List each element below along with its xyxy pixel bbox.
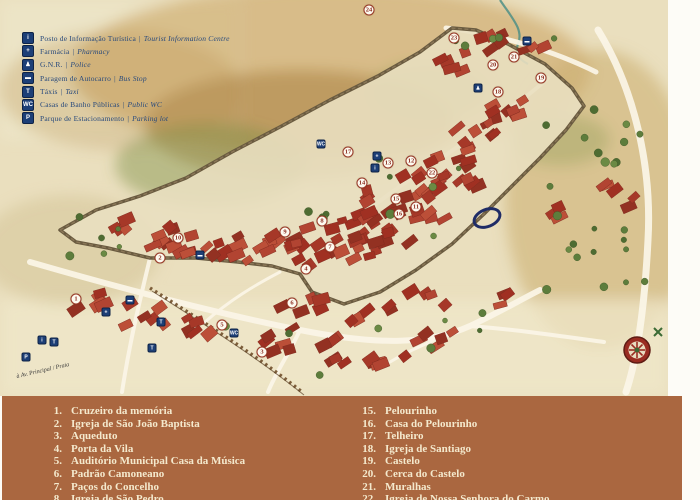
landmark-label: Auditório Municipal Casa da Música xyxy=(71,455,245,468)
landmark-number: 1. xyxy=(38,405,62,418)
bus-stop-icon: ▬ xyxy=(22,72,34,84)
map-marker-1: 1 xyxy=(71,294,82,305)
landmark-number: 17. xyxy=(352,430,376,443)
pharmacy-icon: + xyxy=(373,152,382,161)
map-marker-5: 5 xyxy=(217,320,228,331)
landmark-item: 16.Casa do Pelourinho xyxy=(352,418,672,431)
map-marker-20: 20 xyxy=(488,60,499,71)
tourist-info-icon: i xyxy=(22,32,34,44)
landmark-label: Igreja de São Pedro xyxy=(71,493,164,500)
map-marker-9: 9 xyxy=(280,227,291,238)
taxi-icon: T xyxy=(157,318,166,327)
landmark-number: 18. xyxy=(352,443,376,456)
landmark-item: 21.Muralhas xyxy=(352,481,672,494)
map-marker-4: 4 xyxy=(301,264,312,275)
landmark-number: 22. xyxy=(352,493,376,500)
legend-label: Táxis|Taxi xyxy=(40,87,79,96)
map-marker-18: 18 xyxy=(493,87,504,98)
landmark-label: Telheiro xyxy=(385,430,424,443)
landmark-label: Igreja de São João Baptista xyxy=(71,418,200,431)
landmark-item: 2.Igreja de São João Baptista xyxy=(38,418,328,431)
legend-item: ▬Paragem de Autocarro|Bus Stop xyxy=(22,73,292,83)
landmark-number: 21. xyxy=(352,481,376,494)
landmark-number: 7. xyxy=(38,481,62,494)
taxi-icon: T xyxy=(148,344,157,353)
legend-label: Farmácia|Pharmacy xyxy=(40,47,110,56)
public-wc-icon: WC xyxy=(22,99,34,111)
landmark-number: 2. xyxy=(38,418,62,431)
landmark-label: Castelo xyxy=(385,455,420,468)
landmark-number: 5. xyxy=(38,455,62,468)
map-marker-17: 17 xyxy=(343,147,354,158)
landmark-item: 5.Auditório Municipal Casa da Música xyxy=(38,455,328,468)
landmark-number: 3. xyxy=(38,430,62,443)
pharmacy-icon: + xyxy=(102,308,111,317)
landmark-item: 22.Igreja de Nossa Senhora do Carmo xyxy=(352,493,672,500)
landmark-label: Muralhas xyxy=(385,481,431,494)
landmark-label: Igreja de Nossa Senhora do Carmo xyxy=(385,493,550,500)
landmark-number: 19. xyxy=(352,455,376,468)
landmark-item: 4.Porta da Vila xyxy=(38,443,328,456)
tourist-info-icon: i xyxy=(371,164,380,173)
map-marker-7: 7 xyxy=(325,242,336,253)
map-marker-8: 8 xyxy=(317,216,328,227)
landmark-label: Pelourinho xyxy=(385,405,437,418)
landmark-item: 7.Paços do Concelho xyxy=(38,481,328,494)
landmark-label: Porta da Vila xyxy=(71,443,133,456)
map-marker-22: 22 xyxy=(427,168,438,179)
pharmacy-icon: + xyxy=(22,45,34,57)
bus-stop-icon: ▬ xyxy=(523,37,532,46)
legend-item: PParque de Estacionamento|Parking lot xyxy=(22,113,292,123)
map-marker-14: 14 xyxy=(357,178,368,189)
police-icon: ♟ xyxy=(474,84,483,93)
landmark-label: Cerca do Castelo xyxy=(385,468,465,481)
map-marker-24: 24 xyxy=(364,5,375,16)
landmark-column-right: 15.Pelourinho16.Casa do Pelourinho17.Tel… xyxy=(352,405,672,500)
landmark-item: 3.Aqueduto xyxy=(38,430,328,443)
map-marker-23: 23 xyxy=(449,33,460,44)
legend-item: WCCasas de Banho Públicas|Public WC xyxy=(22,100,292,110)
bus-stop-icon: ▬ xyxy=(196,251,205,260)
landmark-label: Casa do Pelourinho xyxy=(385,418,477,431)
landmark-item: 18.Igreja de Santiago xyxy=(352,443,672,456)
bus-stop-icon: ▬ xyxy=(126,296,135,305)
police-icon: ♟ xyxy=(22,59,34,71)
landmark-number: 20. xyxy=(352,468,376,481)
public-wc-icon: WC xyxy=(317,140,326,149)
map-marker-6: 6 xyxy=(287,298,298,309)
map-marker-19: 19 xyxy=(536,73,547,84)
landmark-column-left: 1.Cruzeiro da memória2.Igreja de São Joã… xyxy=(38,405,328,500)
landmark-item: 15.Pelourinho xyxy=(352,405,672,418)
map-marker-10: 10 xyxy=(173,233,184,244)
map-marker-16: 16 xyxy=(394,209,405,220)
landmark-list-band: 1.Cruzeiro da memória2.Igreja de São Joã… xyxy=(2,396,682,500)
legend-label: Parque de Estacionamento|Parking lot xyxy=(40,114,168,123)
landmark-item: 1.Cruzeiro da memória xyxy=(38,405,328,418)
landmark-label: Cruzeiro da memória xyxy=(71,405,172,418)
tourist-info-icon: i xyxy=(38,336,47,345)
landmark-label: Padrão Camoneano xyxy=(71,468,164,481)
parking-icon: P xyxy=(22,112,34,124)
landmark-item: 19.Castelo xyxy=(352,455,672,468)
landmark-item: 20.Cerca do Castelo xyxy=(352,468,672,481)
public-wc-icon: WC xyxy=(230,329,239,338)
town-map: iPosto de Informação Turística|Tourist I… xyxy=(0,0,668,396)
legend-label: Casas de Banho Públicas|Public WC xyxy=(40,100,162,109)
scanned-town-map-page: iPosto de Informação Turística|Tourist I… xyxy=(0,0,700,500)
legend-item: ♟G.N.R.|Police xyxy=(22,60,292,70)
map-marker-2: 2 xyxy=(155,253,166,264)
landmark-item: 17.Telheiro xyxy=(352,430,672,443)
landmark-number: 8. xyxy=(38,493,62,500)
landmark-number: 15. xyxy=(352,405,376,418)
map-legend: iPosto de Informação Turística|Tourist I… xyxy=(22,33,292,127)
taxi-icon: T xyxy=(50,338,59,347)
landmark-number: 4. xyxy=(38,443,62,456)
legend-label: Paragem de Autocarro|Bus Stop xyxy=(40,74,147,83)
map-marker-3: 3 xyxy=(257,347,268,358)
landmark-item: 6.Padrão Camoneano xyxy=(38,468,328,481)
landmark-label: Aqueduto xyxy=(71,430,117,443)
legend-label: Posto de Informação Turística|Tourist In… xyxy=(40,34,230,43)
map-marker-15: 15 xyxy=(391,194,402,205)
map-marker-13: 13 xyxy=(383,158,394,169)
landmark-number: 16. xyxy=(352,418,376,431)
map-marker-12: 12 xyxy=(406,156,417,167)
landmark-label: Paços do Concelho xyxy=(71,481,159,494)
legend-item: iPosto de Informação Turística|Tourist I… xyxy=(22,33,292,43)
map-marker-21: 21 xyxy=(509,52,520,63)
legend-label: G.N.R.|Police xyxy=(40,60,91,69)
landmark-label: Igreja de Santiago xyxy=(385,443,471,456)
legend-item: TTáxis|Taxi xyxy=(22,87,292,97)
landmark-item: 8.Igreja de São Pedro xyxy=(38,493,328,500)
parking-icon: P xyxy=(22,353,31,362)
taxi-icon: T xyxy=(22,86,34,98)
landmark-number: 6. xyxy=(38,468,62,481)
legend-item: +Farmácia|Pharmacy xyxy=(22,46,292,56)
map-marker-11: 11 xyxy=(411,202,422,213)
